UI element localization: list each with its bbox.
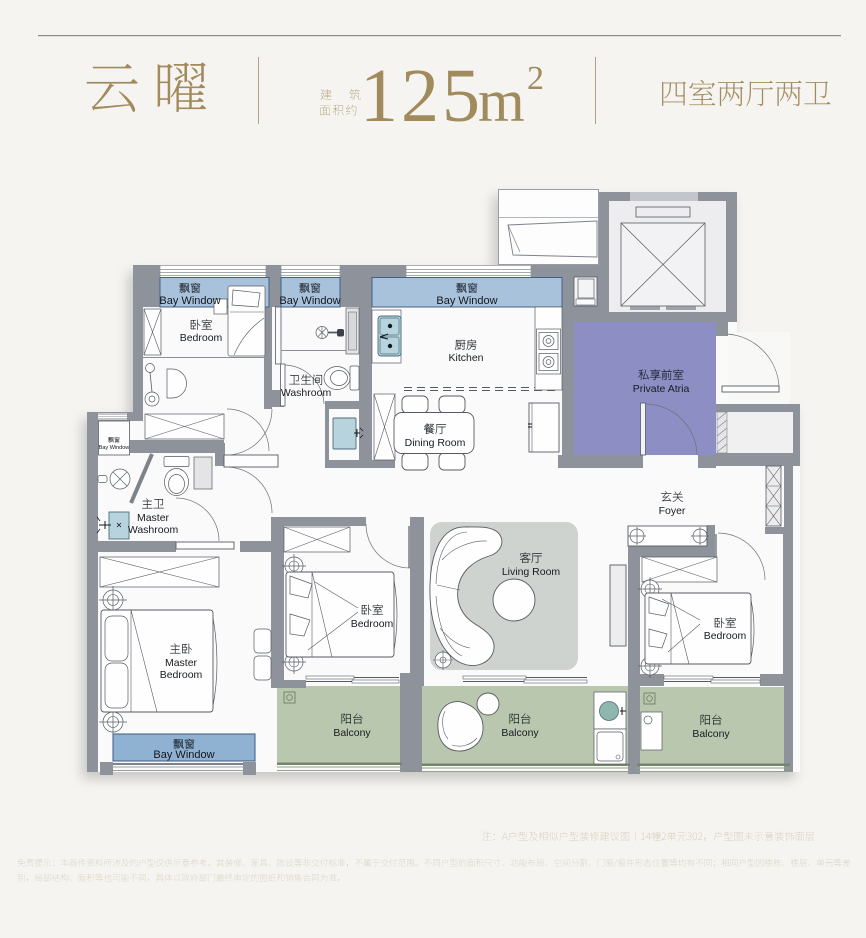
svg-text:Bedroom: Bedroom (351, 618, 394, 630)
svg-text:Washroom: Washroom (128, 524, 179, 536)
svg-text:Balcony: Balcony (333, 727, 371, 739)
svg-text:Bay Window: Bay Window (436, 295, 497, 307)
svg-text:Foyer: Foyer (659, 505, 686, 517)
svg-text:Bay Window: Bay Window (153, 749, 214, 761)
svg-text:m: m (478, 68, 525, 134)
svg-text:Bedroom: Bedroom (180, 332, 223, 344)
svg-text:Bedroom: Bedroom (160, 669, 203, 681)
svg-text:Master: Master (137, 512, 170, 524)
svg-text:Bay Window: Bay Window (99, 445, 130, 451)
svg-text:Bay Window: Bay Window (159, 295, 220, 307)
svg-text:Balcony: Balcony (501, 727, 539, 739)
svg-text:2: 2 (527, 60, 544, 97)
svg-text:Washroom: Washroom (281, 387, 332, 399)
svg-text:Bay Window: Bay Window (279, 295, 340, 307)
svg-text:Private Atria: Private Atria (633, 383, 690, 395)
svg-text:Master: Master (165, 657, 198, 669)
svg-text:Kitchen: Kitchen (448, 352, 483, 364)
svg-text:Dining Room: Dining Room (405, 437, 466, 449)
svg-text:Living Room: Living Room (502, 566, 561, 578)
svg-text:125: 125 (360, 54, 483, 138)
svg-text:Bedroom: Bedroom (704, 630, 747, 642)
svg-text:Balcony: Balcony (692, 728, 730, 740)
